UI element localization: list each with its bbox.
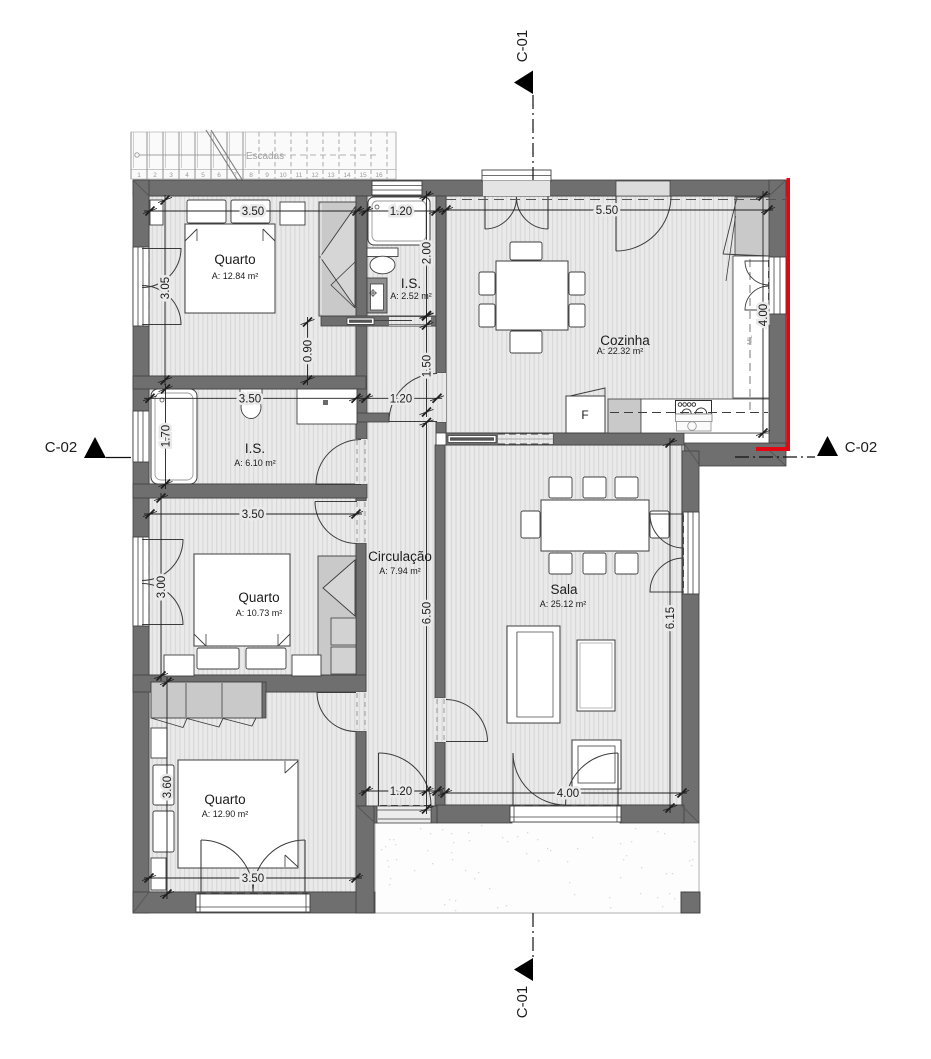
svg-text:4: 4 — [185, 172, 189, 179]
svg-text:6.15: 6.15 — [665, 607, 677, 629]
svg-text:10: 10 — [279, 172, 287, 179]
svg-text:11: 11 — [296, 172, 303, 179]
svg-text:A: 12.84 m²: A: 12.84 m² — [212, 271, 259, 281]
svg-text:C-01: C-01 — [514, 30, 531, 63]
svg-text:Quarto: Quarto — [238, 590, 279, 605]
svg-text:I.S.: I.S. — [245, 441, 265, 456]
svg-text:A: 10.73 m²: A: 10.73 m² — [236, 608, 283, 618]
svg-text:5.50: 5.50 — [596, 205, 618, 217]
svg-text:ML: ML — [747, 335, 754, 345]
svg-text:15: 15 — [359, 172, 367, 179]
svg-text:0.90: 0.90 — [303, 340, 315, 362]
svg-text:Quarto: Quarto — [204, 792, 245, 807]
svg-text:2.00: 2.00 — [422, 242, 434, 264]
svg-text:3.50: 3.50 — [242, 509, 264, 521]
svg-text:3.50: 3.50 — [242, 206, 264, 218]
svg-text:6: 6 — [217, 172, 221, 179]
svg-text:C-02: C-02 — [45, 439, 78, 456]
svg-text:1.50: 1.50 — [422, 355, 434, 377]
svg-text:3.05: 3.05 — [160, 277, 172, 299]
svg-text:3.50: 3.50 — [239, 393, 261, 405]
svg-text:Sala: Sala — [550, 582, 578, 597]
svg-text:3.00: 3.00 — [156, 576, 168, 598]
svg-text:3.50: 3.50 — [242, 873, 264, 885]
svg-text:Quarto: Quarto — [214, 252, 255, 267]
svg-text:1.20: 1.20 — [390, 393, 412, 405]
svg-text:A: 25.12 m²: A: 25.12 m² — [540, 599, 587, 609]
svg-text:8: 8 — [249, 172, 253, 179]
svg-text:1.70: 1.70 — [161, 425, 173, 447]
svg-text:4.00: 4.00 — [758, 304, 770, 326]
svg-text:1.20: 1.20 — [390, 786, 412, 798]
svg-text:3: 3 — [169, 172, 173, 179]
svg-text:C-02: C-02 — [845, 439, 878, 456]
svg-text:A: 2.52 m²: A: 2.52 m² — [390, 291, 432, 301]
svg-text:A: 12.90 m²: A: 12.90 m² — [202, 809, 249, 819]
svg-text:F: F — [581, 408, 588, 422]
svg-text:5: 5 — [201, 172, 205, 179]
svg-text:3.60: 3.60 — [162, 776, 174, 798]
svg-text:1: 1 — [137, 172, 141, 179]
svg-text:C-01: C-01 — [514, 986, 531, 1019]
svg-text:Escadas: Escadas — [246, 151, 284, 162]
svg-text:6.50: 6.50 — [422, 602, 434, 624]
svg-text:I.S.: I.S. — [401, 276, 421, 291]
svg-text:12: 12 — [311, 172, 319, 179]
svg-text:13: 13 — [327, 172, 335, 179]
svg-text:A: 22.32 m²: A: 22.32 m² — [597, 346, 644, 356]
svg-text:Circulação: Circulação — [368, 549, 432, 564]
svg-text:7: 7 — [233, 172, 237, 179]
svg-text:14: 14 — [343, 172, 351, 179]
svg-text:1.20: 1.20 — [390, 206, 412, 218]
svg-text:A: 7.94 m²: A: 7.94 m² — [379, 566, 421, 576]
svg-text:16: 16 — [375, 172, 383, 179]
svg-text:A: 6.10 m²: A: 6.10 m² — [234, 458, 276, 468]
svg-text:9: 9 — [265, 172, 269, 179]
svg-text:4.00: 4.00 — [557, 788, 579, 800]
svg-text:2: 2 — [153, 172, 157, 179]
